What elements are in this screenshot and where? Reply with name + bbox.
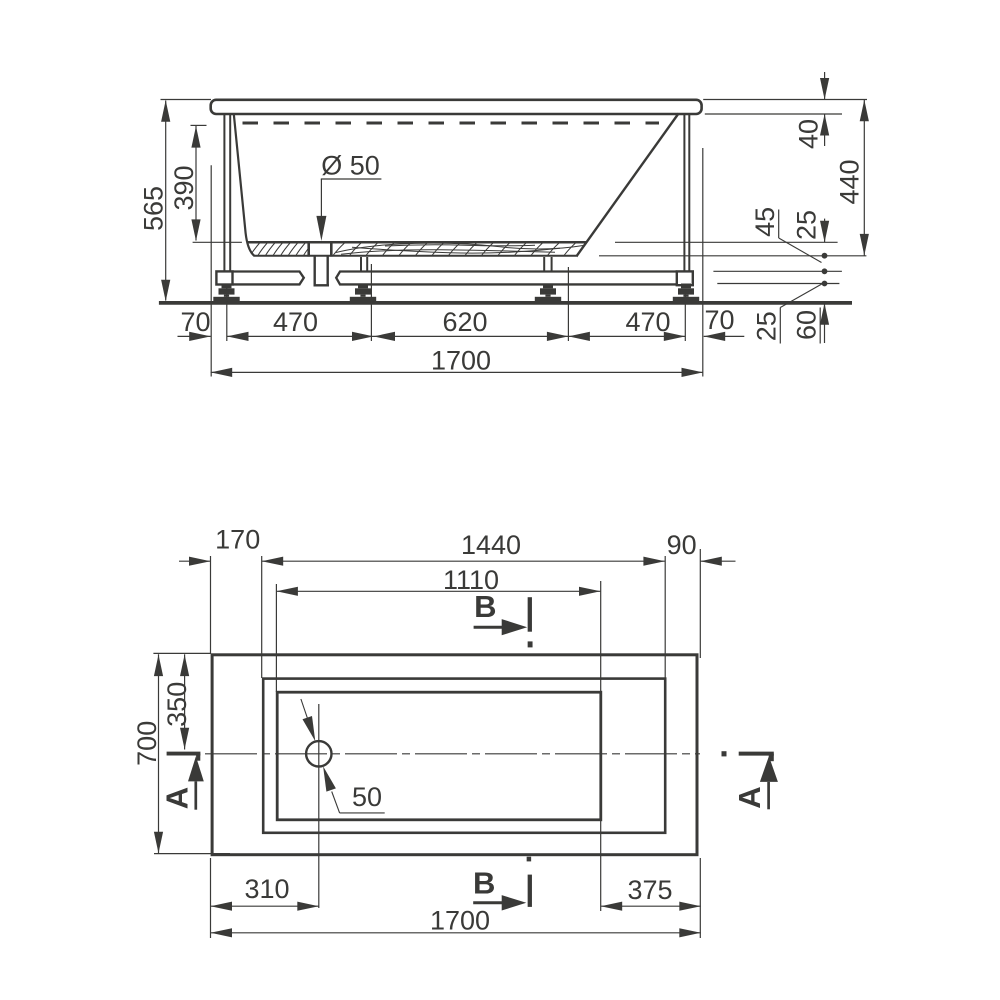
svg-text:440: 440 — [835, 159, 865, 204]
svg-text:350: 350 — [162, 682, 192, 727]
svg-text:50: 50 — [352, 782, 382, 812]
svg-text:620: 620 — [442, 307, 487, 337]
svg-text:1110: 1110 — [443, 565, 499, 595]
svg-text:170: 170 — [215, 525, 260, 555]
svg-text:A: A — [732, 786, 767, 808]
svg-text:B: B — [473, 866, 495, 901]
svg-text:40: 40 — [794, 119, 824, 149]
svg-text:25: 25 — [791, 210, 821, 240]
svg-text:45: 45 — [750, 207, 780, 237]
svg-text:90: 90 — [667, 530, 697, 560]
svg-text:70: 70 — [704, 305, 734, 335]
svg-text:390: 390 — [169, 165, 199, 210]
svg-text:25: 25 — [751, 311, 781, 341]
svg-text:470: 470 — [273, 307, 318, 337]
svg-text:565: 565 — [139, 186, 169, 231]
svg-text:700: 700 — [132, 721, 162, 766]
svg-text:1440: 1440 — [461, 530, 521, 560]
svg-text:70: 70 — [180, 307, 210, 337]
svg-text:1700: 1700 — [431, 346, 491, 376]
svg-text:1700: 1700 — [430, 906, 490, 936]
svg-text:A: A — [160, 787, 195, 809]
svg-text:310: 310 — [244, 874, 289, 904]
svg-text:60: 60 — [792, 310, 822, 340]
svg-text:470: 470 — [625, 307, 670, 337]
svg-text:375: 375 — [627, 875, 672, 905]
svg-text:Ø 50: Ø 50 — [321, 150, 380, 180]
